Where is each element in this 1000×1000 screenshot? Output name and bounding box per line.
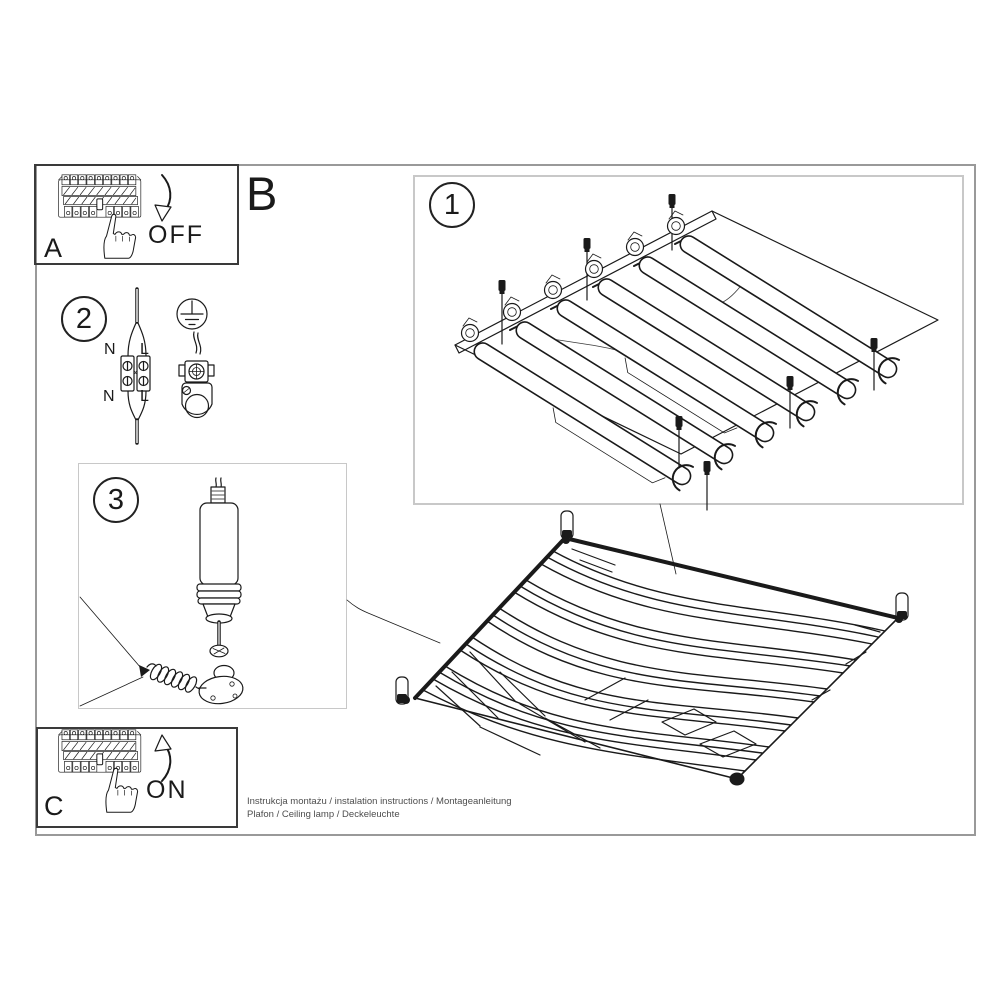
canopy-illustration bbox=[198, 666, 245, 707]
corner-peg bbox=[895, 593, 908, 623]
ground-symbol-icon bbox=[177, 299, 207, 329]
instruction-sheet: B A OFF C ON 1 2 3 N L N L Instrukcja mo… bbox=[0, 0, 1000, 1000]
breaker-panel-a-illustration bbox=[59, 175, 141, 217]
tube-lamp-row bbox=[464, 229, 902, 499]
on-state-label: ON bbox=[146, 777, 188, 805]
lamp-holder-illustration bbox=[197, 478, 241, 646]
line-art-layer bbox=[0, 0, 1000, 1000]
breaker-panel-c-illustration bbox=[59, 730, 141, 772]
step2-number-badge: 2 bbox=[61, 296, 107, 342]
ceiling-frame-illustration bbox=[455, 194, 938, 510]
section-c-label: C bbox=[44, 792, 64, 822]
wire-label-l-bottom: L bbox=[140, 388, 149, 406]
caption-line-1: Instrukcja montażu / instalation instruc… bbox=[247, 795, 512, 808]
step3-number-badge: 3 bbox=[93, 477, 139, 523]
off-state-label: OFF bbox=[148, 222, 204, 250]
section-a-label: A bbox=[44, 234, 62, 264]
spring-illustration bbox=[147, 663, 206, 694]
corner-peg bbox=[730, 773, 745, 786]
section-b-label: B bbox=[246, 168, 278, 220]
ground-clamp-illustration bbox=[179, 332, 214, 418]
corner-peg bbox=[396, 677, 410, 704]
leader-line-step3-to-shade bbox=[347, 600, 440, 643]
fabric-corner-leader-lines bbox=[80, 597, 150, 706]
fabric-shade-illustration bbox=[396, 511, 908, 786]
step1-number-badge: 1 bbox=[429, 182, 475, 228]
hand-press-icon-c bbox=[106, 768, 138, 812]
arrow-up-icon bbox=[155, 735, 171, 781]
wire-label-l-top: L bbox=[140, 341, 149, 359]
arrow-down-icon bbox=[155, 175, 171, 221]
terminal-block-illustration bbox=[121, 356, 150, 391]
screw-illustration-step3 bbox=[210, 645, 228, 657]
hand-press-icon-a bbox=[104, 214, 136, 258]
wire-label-n-bottom: N bbox=[103, 388, 115, 406]
caption-line-2: Plafon / Ceiling lamp / Deckeleuchte bbox=[247, 808, 400, 821]
wire-label-n-top: N bbox=[104, 341, 116, 359]
